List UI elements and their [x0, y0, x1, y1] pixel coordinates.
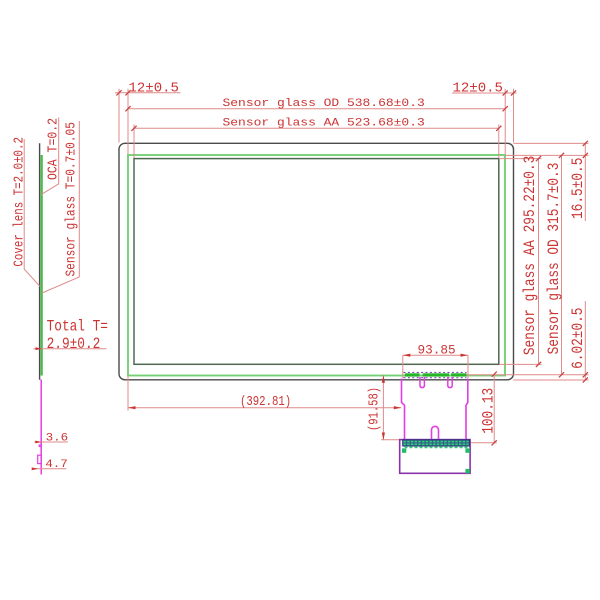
svg-text:Sensor glass AA 295.22±0.3: Sensor glass AA 295.22±0.3 — [522, 156, 540, 355]
svg-text:100.13: 100.13 — [481, 388, 499, 434]
svg-text:Sensor glass OD 538.68±0.3: Sensor glass OD 538.68±0.3 — [223, 97, 425, 110]
svg-text:(91.58): (91.58) — [366, 387, 382, 431]
svg-text:Cover lens T=2.0±0.2: Cover lens T=2.0±0.2 — [11, 137, 26, 267]
svg-text:2.9±0.2: 2.9±0.2 — [47, 336, 101, 354]
svg-text:6.02±0.5: 6.02±0.5 — [570, 308, 588, 369]
svg-text:Sensor glass T=0.7±0.05: Sensor glass T=0.7±0.05 — [64, 122, 79, 276]
svg-text:Total T=: Total T= — [47, 318, 108, 336]
svg-text:OCA T=0.2: OCA T=0.2 — [46, 118, 61, 180]
svg-text:93.85: 93.85 — [418, 343, 456, 358]
svg-text:(392.81): (392.81) — [240, 394, 291, 410]
svg-text:12±0.5: 12±0.5 — [453, 81, 503, 97]
svg-text:12±0.5: 12±0.5 — [129, 81, 179, 97]
svg-text:Sensor glass AA 523.68±0.3: Sensor glass AA 523.68±0.3 — [223, 116, 425, 129]
svg-text:Sensor glass OD 315.7±0.3: Sensor glass OD 315.7±0.3 — [546, 163, 564, 355]
svg-text:16.5±0.5: 16.5±0.5 — [570, 158, 588, 219]
